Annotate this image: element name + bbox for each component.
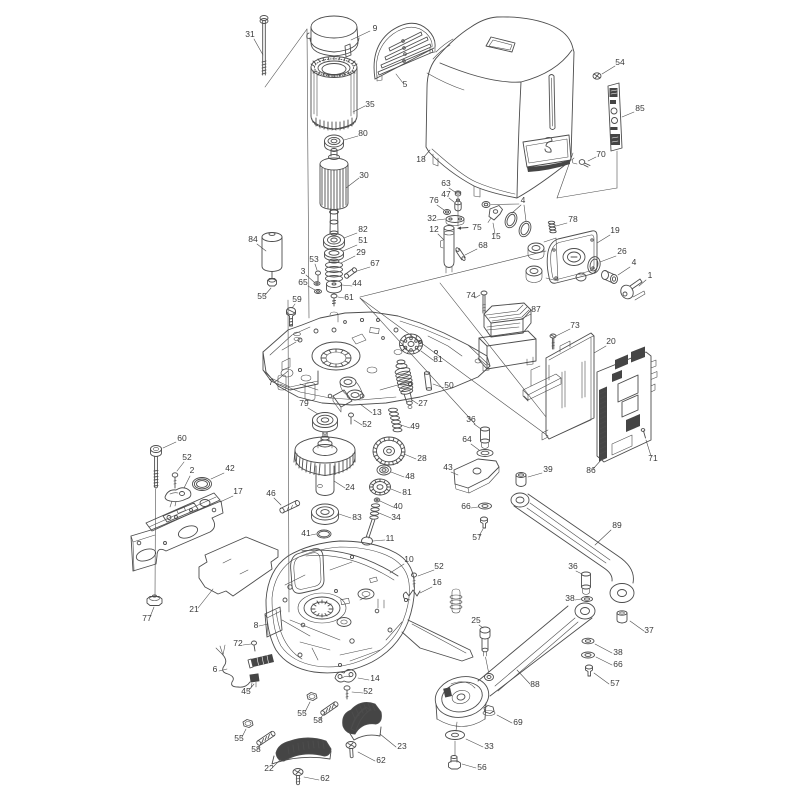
svg-text:42: 42 [225,463,235,473]
svg-text:34: 34 [391,512,401,522]
svg-text:17: 17 [233,486,243,496]
svg-text:84: 84 [248,234,258,244]
svg-text:6: 6 [213,664,218,674]
svg-text:16: 16 [432,577,442,587]
svg-text:75: 75 [472,222,482,232]
svg-text:47: 47 [441,189,451,199]
svg-text:52: 52 [182,452,192,462]
svg-text:79: 79 [299,398,309,408]
svg-text:4: 4 [632,257,637,267]
svg-text:25: 25 [471,615,481,625]
svg-text:29: 29 [356,247,366,257]
svg-text:62: 62 [376,755,386,765]
svg-text:15: 15 [491,231,501,241]
svg-text:46: 46 [266,488,276,498]
svg-text:62: 62 [320,773,330,783]
svg-text:76: 76 [429,195,439,205]
svg-text:22: 22 [264,763,274,773]
svg-text:44: 44 [352,278,362,288]
svg-text:33: 33 [484,741,494,751]
svg-text:53: 53 [309,254,319,264]
svg-text:55: 55 [297,708,307,718]
svg-text:72: 72 [233,638,243,648]
svg-text:57: 57 [610,678,620,688]
svg-text:55: 55 [257,291,267,301]
svg-text:59: 59 [292,294,302,304]
svg-text:81: 81 [402,487,412,497]
svg-text:56: 56 [477,762,487,772]
svg-text:2: 2 [190,465,195,475]
svg-text:23: 23 [397,741,407,751]
svg-text:81: 81 [433,354,443,364]
svg-text:7: 7 [269,377,274,387]
svg-text:4: 4 [521,195,526,205]
svg-text:66: 66 [613,659,623,669]
svg-text:8: 8 [254,620,259,630]
svg-text:24: 24 [345,482,355,492]
svg-text:35: 35 [365,99,375,109]
svg-text:88: 88 [530,679,540,689]
svg-text:37: 37 [644,625,654,635]
svg-text:14: 14 [370,673,380,683]
svg-text:13: 13 [372,407,382,417]
svg-text:78: 78 [568,214,578,224]
svg-text:36: 36 [466,414,476,424]
svg-text:67: 67 [370,258,380,268]
svg-text:73: 73 [570,320,580,330]
svg-text:61: 61 [344,292,354,302]
svg-text:49: 49 [410,421,420,431]
svg-text:82: 82 [358,224,368,234]
svg-text:38: 38 [613,647,623,657]
svg-text:86: 86 [586,465,596,475]
svg-text:28: 28 [417,453,427,463]
svg-text:63: 63 [441,178,451,188]
svg-text:5: 5 [403,79,408,89]
svg-text:60: 60 [177,433,187,443]
svg-text:38: 38 [565,593,575,603]
svg-text:1: 1 [648,270,653,280]
svg-text:10: 10 [404,554,414,564]
svg-text:51: 51 [358,235,368,245]
svg-text:30: 30 [359,170,369,180]
svg-text:55: 55 [234,733,244,743]
svg-text:20: 20 [606,336,616,346]
svg-text:52: 52 [363,686,373,696]
svg-text:66: 66 [461,501,471,511]
svg-text:31: 31 [245,29,255,39]
svg-text:26: 26 [617,246,627,256]
svg-text:64: 64 [462,434,472,444]
svg-text:18: 18 [416,154,426,164]
svg-text:65: 65 [298,277,308,287]
svg-text:32: 32 [427,213,437,223]
svg-text:36: 36 [568,561,578,571]
svg-text:21: 21 [189,604,199,614]
svg-text:43: 43 [443,462,453,472]
svg-text:52: 52 [434,561,444,571]
svg-text:9: 9 [373,23,378,33]
svg-text:77: 77 [142,613,152,623]
svg-text:41: 41 [301,528,311,538]
svg-text:83: 83 [352,512,362,522]
svg-text:40: 40 [393,501,403,511]
svg-text:74: 74 [466,290,476,300]
svg-text:27: 27 [418,398,428,408]
svg-text:70: 70 [596,149,606,159]
svg-text:54: 54 [615,57,625,67]
svg-text:85: 85 [635,103,645,113]
svg-text:48: 48 [405,471,415,481]
svg-text:45: 45 [241,686,251,696]
svg-text:68: 68 [478,240,488,250]
svg-text:50: 50 [444,380,454,390]
svg-text:11: 11 [386,533,395,543]
svg-text:71: 71 [648,453,658,463]
svg-text:3: 3 [301,266,306,276]
svg-text:12: 12 [429,224,439,234]
svg-text:39: 39 [543,464,553,474]
svg-text:52: 52 [362,419,372,429]
svg-text:80: 80 [358,128,368,138]
svg-text:87: 87 [531,304,541,314]
svg-text:69: 69 [513,717,523,727]
svg-text:89: 89 [612,520,622,530]
svg-text:19: 19 [610,225,620,235]
